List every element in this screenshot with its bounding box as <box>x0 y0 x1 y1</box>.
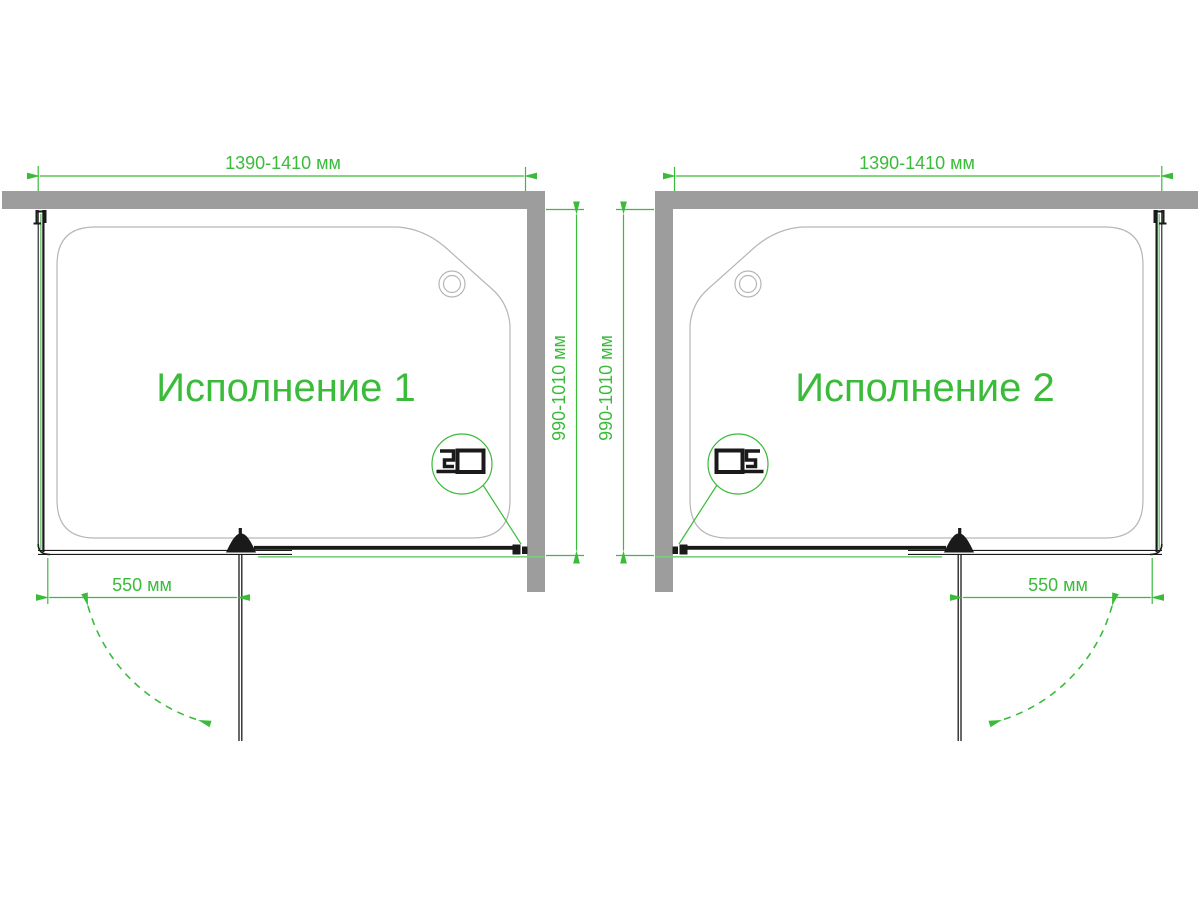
door-swing-arc <box>88 606 198 720</box>
diagram-2-label: Исполнение 2 <box>795 366 1055 410</box>
diagram-1-label: Исполнение 1 <box>156 366 416 410</box>
wall-profile-fitting <box>513 545 528 555</box>
dim-door-text-1: 550 мм <box>112 575 172 595</box>
drawing-canvas: 1390-1410 мм 990-1010 мм 550 мм Исполнен… <box>0 0 1200 900</box>
door-hinge <box>226 534 256 553</box>
dim-depth-text-1: 990-1010 мм <box>549 335 569 441</box>
wall-profile-section-icon <box>437 451 484 473</box>
drain-inner-circle <box>444 276 461 293</box>
wall-side <box>527 209 545 592</box>
dim-width-text-2: 1390-1410 мм <box>859 153 975 173</box>
drain-outer-circle <box>439 271 465 297</box>
diagram-2-graphics <box>616 166 1198 741</box>
dim-door-text-2: 550 мм <box>1028 575 1088 595</box>
dim-width-text-1: 1390-1410 мм <box>225 153 341 173</box>
plan-drawing: 1390-1410 мм 990-1010 мм 550 мм Исполнен… <box>0 0 1200 900</box>
dim-depth-text-2: 990-1010 мм <box>596 335 616 441</box>
diagram-1-graphics <box>2 166 584 741</box>
wall-top <box>2 191 545 209</box>
